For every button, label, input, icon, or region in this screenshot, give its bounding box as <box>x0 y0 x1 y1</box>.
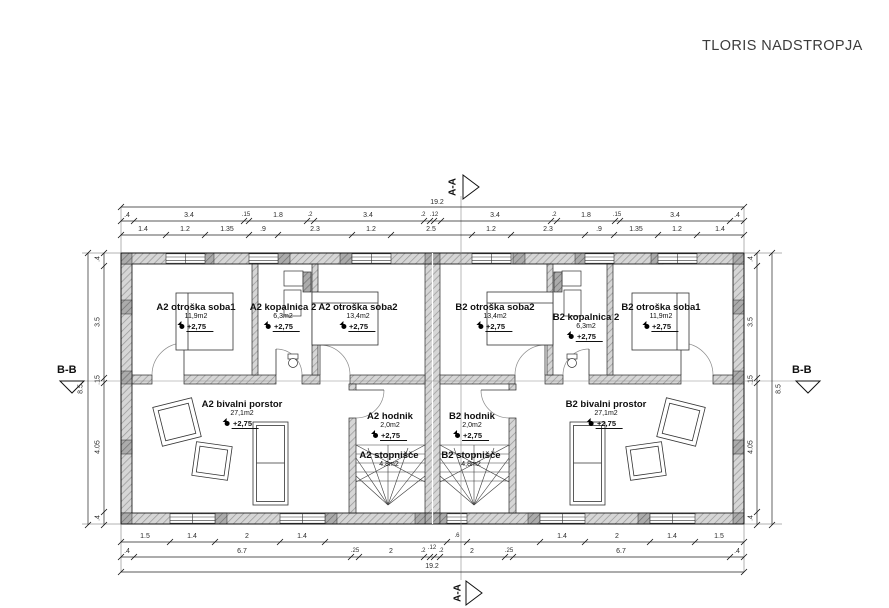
dim-label: 6.7 <box>237 548 247 555</box>
dim-label: 2 <box>245 533 249 540</box>
dim-label: 6.7 <box>616 548 626 555</box>
dim-label: .25 <box>351 548 359 554</box>
room-label-b2-otroska-soba2: B2 otroška soba2 13,4m2 +2,75 <box>455 302 534 332</box>
room-label-b2-bivalni: B2 bivalni prostor 27,1m2 +2,75 <box>566 399 647 429</box>
dim-label: 1.5 <box>714 533 724 540</box>
dim-label: 3.4 <box>184 212 194 219</box>
floor-plan-drawing <box>0 0 889 608</box>
drawing-canvas: TLORIS NADSTROPJA A-A A-A B-B B-B A2 otr… <box>0 0 889 608</box>
section-label-aa-top: A-A <box>448 178 459 196</box>
dim-label: 3.5 <box>95 317 102 327</box>
level-marker-icon <box>373 433 378 438</box>
dim-label: .4 <box>124 548 130 555</box>
dim-label: 3.4 <box>363 212 373 219</box>
level-marker-icon <box>455 433 460 438</box>
room-label-a2-kopalnica: A2 kopalnica 2 6,3m2 +2,75 <box>250 302 317 332</box>
dim-total-height-right: 8.5 <box>776 384 783 394</box>
dim-label: 2.5 <box>426 226 436 233</box>
dim-total-height-left: 8.5 <box>78 384 85 394</box>
dim-label: .25 <box>505 548 513 554</box>
level-marker-icon <box>341 324 346 329</box>
room-label-a2-otroska-soba2: A2 otroška soba2 13,4m2 +2,75 <box>318 302 397 332</box>
dim-total-width-top: 19.2 <box>430 199 444 206</box>
dim-label: 1.4 <box>557 533 567 540</box>
section-flag-aa-bottom-icon <box>466 581 482 605</box>
room-label-b2-hodnik: B2 hodnik 2,0m2 +2,75 <box>449 411 495 441</box>
level-marker-icon <box>569 334 574 339</box>
dim-label: 2 <box>470 548 474 555</box>
dim-label: .15 <box>95 375 102 385</box>
dim-label: 1.35 <box>629 226 643 233</box>
dim-label: .6 <box>454 533 459 539</box>
dim-label: .4 <box>95 256 102 262</box>
dim-label: 1.4 <box>138 226 148 233</box>
section-line-aa <box>461 175 482 605</box>
dim-label: 1.2 <box>486 226 496 233</box>
room-label-b2-kopalnica: B2 kopalnica 2 6,3m2 +2,75 <box>553 312 620 342</box>
dim-label: .15 <box>242 212 250 218</box>
dim-label: .15 <box>748 375 755 385</box>
dim-label: 1.5 <box>140 533 150 540</box>
level-marker-icon <box>179 324 184 329</box>
dim-label: .9 <box>260 226 266 233</box>
dim-label: 1.4 <box>187 533 197 540</box>
section-label-bb-left: B-B <box>57 364 77 376</box>
room-label-a2-otroska-soba1: A2 otroška soba1 11,9m2 +2,75 <box>156 302 235 332</box>
dim-label: .9 <box>596 226 602 233</box>
dim-label: .2 <box>420 212 425 218</box>
dim-label: .4 <box>734 548 740 555</box>
room-label-b2-stopnisce: B2 stopnišče 4,8m2 <box>441 450 500 470</box>
dim-label: 3.5 <box>748 317 755 327</box>
dim-label: 1.2 <box>366 226 376 233</box>
dim-label: .4 <box>95 515 102 521</box>
section-flag-bb-right-icon <box>796 381 820 393</box>
drawing-title: TLORIS NADSTROPJA <box>702 38 863 54</box>
dim-total-width-bottom: 19.2 <box>425 563 439 570</box>
dim-label: 4.05 <box>748 440 755 454</box>
section-label-bb-right: B-B <box>792 364 812 376</box>
room-label-a2-hodnik: A2 hodnik 2,0m2 +2,75 <box>367 411 413 441</box>
room-label-b2-otroska-soba1: B2 otroška soba1 11,9m2 +2,75 <box>621 302 700 332</box>
dim-label: .2 <box>438 548 443 554</box>
dim-label: 1.2 <box>180 226 190 233</box>
level-marker-icon <box>644 324 649 329</box>
level-marker-icon <box>225 421 230 426</box>
dim-label: 4.05 <box>95 440 102 454</box>
dim-label: .12 <box>430 212 438 218</box>
dim-label: 2.3 <box>310 226 320 233</box>
section-label-aa-bottom: A-A <box>453 584 464 602</box>
dim-label: .4 <box>124 212 130 219</box>
dim-label: .15 <box>613 212 621 218</box>
room-label-a2-stopnisce: A2 stopnišče 4,8m2 <box>359 450 418 470</box>
dim-label: 1.8 <box>581 212 591 219</box>
room-label-a2-bivalni: A2 bivalni porstor 27,1m2 +2,75 <box>202 399 283 429</box>
dim-label: 2.3 <box>543 226 553 233</box>
dim-label: 2 <box>389 548 393 555</box>
dim-label: 3.4 <box>670 212 680 219</box>
section-flag-aa-top-icon <box>463 175 479 199</box>
dim-label: .2 <box>551 212 556 218</box>
dim-label: .4 <box>748 515 755 521</box>
level-marker-icon <box>266 324 271 329</box>
dim-label: .2 <box>420 548 425 554</box>
dim-label: 1.35 <box>220 226 234 233</box>
level-marker-icon <box>478 324 483 329</box>
dim-label: 1.4 <box>667 533 677 540</box>
dim-label: 1.8 <box>273 212 283 219</box>
dim-label: .2 <box>307 212 312 218</box>
dim-label: 1.4 <box>715 226 725 233</box>
dim-label: 1.4 <box>297 533 307 540</box>
dim-label: .4 <box>748 256 755 262</box>
dim-label: 2 <box>615 533 619 540</box>
level-marker-icon <box>589 421 594 426</box>
dim-label: .12 <box>428 545 436 551</box>
dim-label: .4 <box>734 212 740 219</box>
dim-label: 3.4 <box>490 212 500 219</box>
dim-label: 1.2 <box>672 226 682 233</box>
